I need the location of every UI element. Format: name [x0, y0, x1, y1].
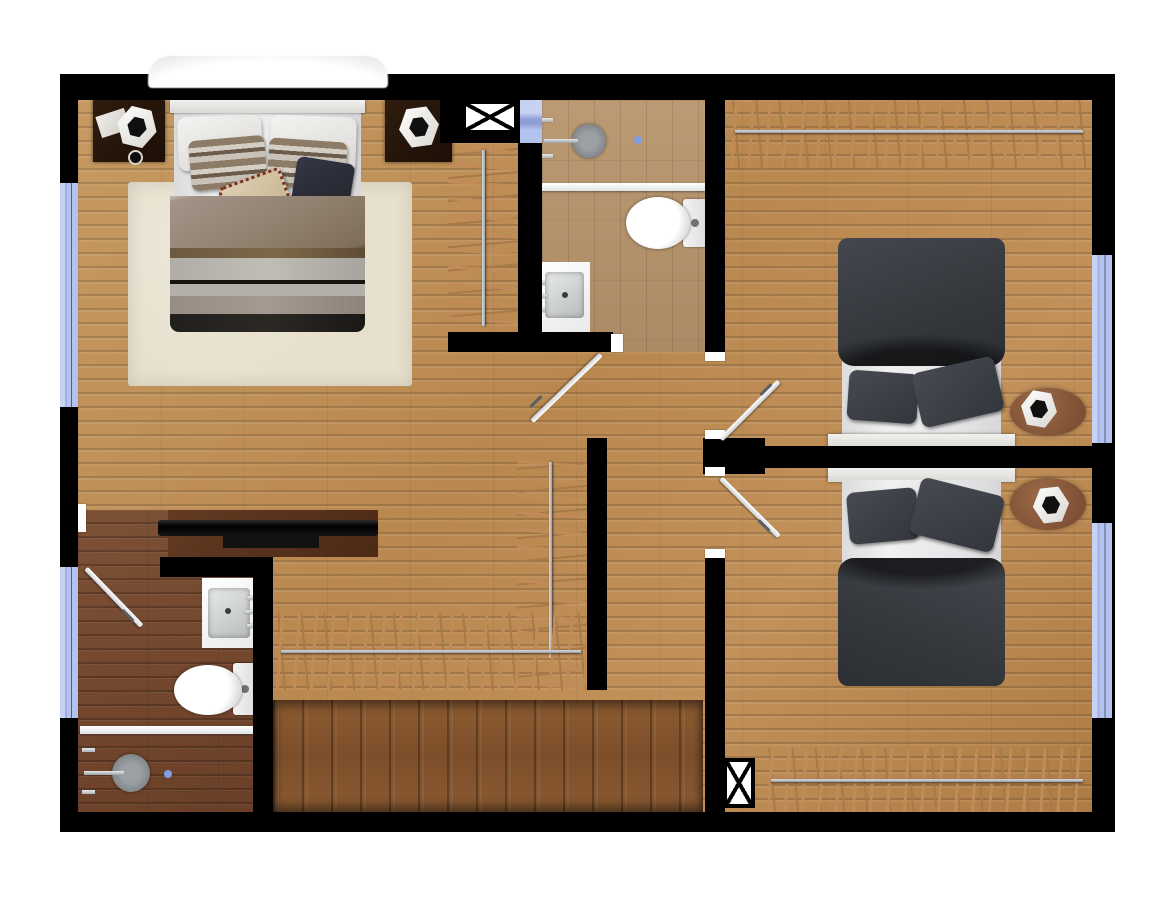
glass-partition-bottom — [80, 726, 253, 734]
wall-right — [1092, 74, 1115, 832]
wall-bottom — [60, 812, 1115, 832]
floor-plan — [0, 0, 1173, 914]
staircase — [273, 700, 703, 812]
bed3-pillow-left — [846, 487, 920, 545]
basin-drain-top — [562, 292, 568, 298]
foot-band-dark — [170, 314, 365, 332]
jamb-bed3-bottom — [705, 549, 725, 558]
shower-arm-bottom — [84, 771, 124, 775]
window-left-master — [60, 183, 78, 407]
window-right-bedroom2 — [1092, 255, 1112, 443]
foot-band-gray1 — [170, 258, 365, 280]
window-right-bedroom3 — [1092, 523, 1112, 718]
toilet-bowl-top — [626, 197, 690, 249]
wall-bedroom-divider — [763, 446, 1093, 468]
mug-icon — [128, 150, 143, 165]
x-shaft-bottom — [723, 758, 755, 808]
floor-drain-bottom — [164, 770, 172, 778]
bedroom2-closet — [727, 98, 1090, 168]
floor-drain-top — [634, 136, 642, 144]
bedroom2-lamp-shade — [1025, 395, 1053, 423]
shower-tap-bottom-1 — [82, 748, 95, 752]
master-bed — [168, 100, 367, 332]
wall-bath-bottom-right — [253, 557, 273, 812]
jamb-bath-top — [611, 334, 623, 352]
lamp-shade-left — [121, 111, 153, 143]
wall-mid-vertical-lower — [705, 558, 725, 812]
bedroom3-lamp-shade — [1038, 492, 1064, 518]
jamb-bed2-top — [705, 352, 725, 361]
bed2-pillow-left — [846, 370, 919, 425]
master-blanket — [170, 196, 365, 252]
x-shaft-top — [462, 100, 518, 134]
wall-bath-top-bottom — [448, 332, 613, 352]
hall-closet-rail-h — [281, 650, 581, 653]
toilet-button-top — [691, 219, 699, 227]
flat-tv — [158, 520, 378, 536]
window-left-bathroom — [60, 567, 78, 718]
foot-band-taupe — [170, 296, 365, 314]
bedroom3-closet-rail — [771, 779, 1083, 782]
foot-band-gray2 — [170, 284, 365, 296]
shower-tap-bottom-2 — [82, 790, 95, 794]
shower-arm-top — [544, 139, 578, 143]
glass-partition-top — [542, 183, 705, 191]
wall-mid-vertical-upper — [705, 74, 725, 360]
toilet-bowl-bottom — [174, 665, 242, 715]
bedroom3-bed — [838, 466, 1005, 686]
master-closet-rail — [482, 150, 485, 326]
bed2-duvet — [838, 238, 1005, 366]
jamb-bath-bottom — [78, 504, 86, 532]
lamp-shade-right — [404, 112, 433, 141]
bedroom2-closet-rail — [735, 130, 1083, 133]
toilet-button-bottom — [241, 685, 249, 693]
exterior-awning — [148, 56, 388, 88]
bed3-duvet — [838, 558, 1005, 686]
basin-drain-bottom — [225, 608, 231, 614]
wall-hall-closet-side — [587, 438, 607, 690]
window-top-small — [520, 100, 542, 143]
jamb-bed3-top — [705, 467, 725, 476]
tv-shelf — [223, 534, 319, 548]
bedroom2-bed — [838, 238, 1005, 448]
master-headboard — [170, 100, 365, 113]
